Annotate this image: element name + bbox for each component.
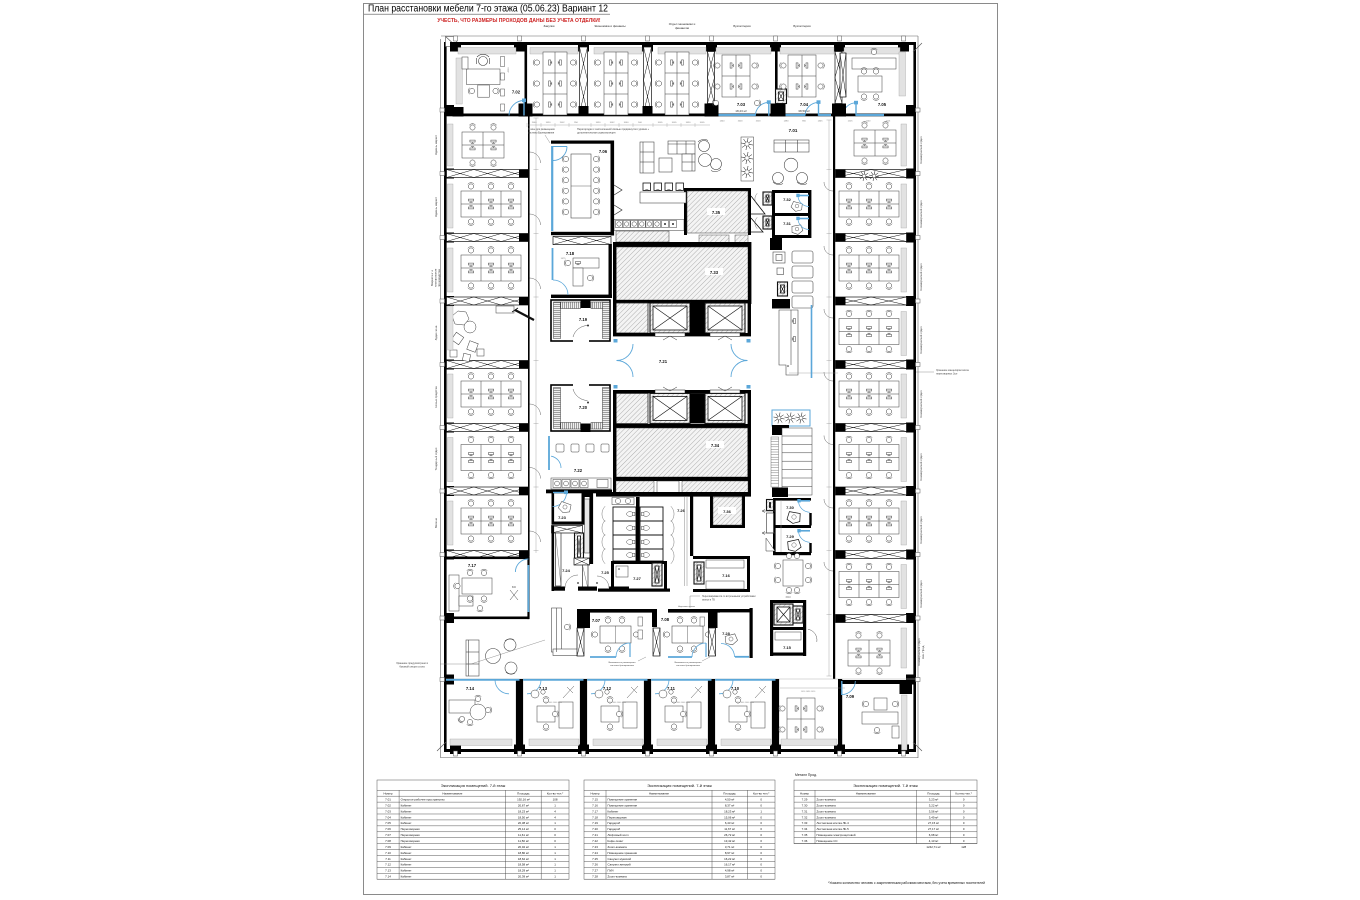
svg-text:7.03: 7.03 — [385, 809, 391, 813]
svg-text:15,06 м²: 15,06 м² — [724, 815, 735, 819]
svg-text:1200 600 1000 1100: 1200 600 1000 1100 — [736, 702, 755, 704]
svg-text:дополнительная шумоизоляция: дополнительная шумоизоляция — [577, 132, 616, 135]
svg-text:Кабинет: Кабинет — [401, 809, 413, 813]
svg-text:600: 600 — [512, 586, 517, 589]
svg-text:7.28: 7.28 — [592, 875, 598, 879]
svg-text:1010 1630 1010: 1010 1630 1010 — [801, 691, 816, 693]
svg-text:Площадь: Площадь — [517, 792, 530, 796]
svg-text:7.09: 7.09 — [846, 694, 855, 699]
svg-text:*Указано количество человек с: *Указано количество человек с закрепленн… — [828, 881, 985, 885]
svg-text:Открытое рабочее пространство: Открытое рабочее пространство — [401, 798, 445, 802]
svg-text:7.24: 7.24 — [592, 851, 598, 855]
svg-text:7.15: 7.15 — [783, 645, 792, 650]
svg-text:7.14: 7.14 — [385, 875, 391, 879]
svg-text:7.32: 7.32 — [802, 815, 808, 819]
svg-text:Кабинет: Кабинет — [401, 803, 413, 807]
svg-text:7.30: 7.30 — [802, 803, 808, 807]
svg-text:финансов: финансов — [675, 26, 689, 30]
svg-text:Гардероб: Гардероб — [608, 821, 621, 825]
svg-text:1100: 1100 — [866, 121, 871, 123]
svg-text:7.03: 7.03 — [737, 102, 746, 107]
svg-text:3,22 м²: 3,22 м² — [929, 803, 938, 807]
svg-text:8,37 м²: 8,37 м² — [725, 803, 734, 807]
svg-text:Наушники шлема: Наушники шлема — [678, 606, 696, 608]
svg-text:Тендерный отдел: Тендерный отдел — [434, 447, 438, 470]
svg-text:7.16: 7.16 — [722, 573, 731, 578]
svg-text:Экспликация помещений. 7-й эта: Экспликация помещений. 7-й этаж — [647, 783, 712, 788]
svg-text:18,29 м²: 18,29 м² — [518, 869, 529, 873]
svg-text:11,61 м²: 11,61 м² — [518, 833, 529, 837]
svg-text:1062: 1062 — [610, 122, 616, 124]
svg-text:7.31: 7.31 — [783, 221, 792, 226]
svg-text:1502: 1502 — [560, 122, 566, 124]
svg-text:128: 128 — [961, 845, 966, 849]
svg-text:Коммерческий отдел: Коммерческий отдел — [919, 263, 923, 290]
svg-text:Кабинет: Кабинет — [401, 875, 413, 879]
svg-text:38,50 м²: 38,50 м² — [798, 109, 809, 113]
svg-text:20,02 м²: 20,02 м² — [518, 845, 529, 849]
svg-text:7.04: 7.04 — [800, 102, 809, 107]
svg-text:записи и ТВ: записи и ТВ — [702, 600, 715, 602]
svg-text:7.10: 7.10 — [731, 686, 740, 691]
svg-text:Гардероб: Гардероб — [608, 827, 621, 831]
svg-text:Площадь: Площадь — [723, 792, 736, 796]
svg-text:4,98 м²: 4,98 м² — [725, 869, 734, 873]
svg-text:Помещение хранения: Помещение хранения — [608, 803, 638, 807]
svg-text:Переговорная: Переговорная — [608, 815, 627, 819]
svg-text:1600: 1600 — [738, 121, 744, 123]
svg-text:18,62 м²: 18,62 м² — [518, 857, 529, 861]
svg-text:боковой секции стола: боковой секции стола — [399, 666, 425, 669]
svg-text:Помещение СС: Помещение СС — [817, 839, 838, 843]
svg-text:Перегородки с застекленной свя: Перегородки с застекленной связью продви… — [577, 127, 650, 131]
svg-text:производства: производства — [437, 269, 441, 287]
svg-text:Номер: Номер — [384, 792, 393, 796]
svg-text:7.20: 7.20 — [579, 405, 588, 410]
svg-text:7.09: 7.09 — [385, 845, 391, 849]
svg-text:3,49 м²: 3,49 м² — [929, 815, 938, 819]
svg-text:20,39 м²: 20,39 м² — [518, 875, 529, 879]
svg-text:Переговариваются со встроенным: Переговариваются со встроенными устройст… — [702, 595, 756, 598]
svg-text:Коммерческий отдел: Коммерческий отдел — [919, 200, 923, 227]
svg-text:Коммерческий отдел: Коммерческий отдел — [919, 326, 923, 353]
svg-text:Кабинет: Кабинет — [401, 851, 413, 855]
svg-text:Коммерческий отдел: Коммерческий отдел — [919, 136, 923, 163]
svg-text:26,72 м²: 26,72 м² — [724, 833, 735, 837]
svg-text:Zoom-комната: Zoom-комната — [608, 875, 628, 879]
svg-text:7.34: 7.34 — [802, 827, 808, 831]
svg-text:Zoom-комната: Zoom-комната — [817, 815, 837, 819]
svg-text:7.24: 7.24 — [562, 568, 571, 573]
svg-text:7.15: 7.15 — [592, 798, 598, 802]
svg-text:16,22 м²: 16,22 м² — [724, 857, 735, 861]
svg-text:7.33: 7.33 — [802, 821, 808, 825]
svg-text:7.08: 7.08 — [385, 839, 391, 843]
svg-text:7.35: 7.35 — [802, 833, 808, 837]
svg-text:7.29: 7.29 — [802, 798, 808, 802]
svg-text:1242,71 м²: 1242,71 м² — [926, 845, 940, 849]
svg-text:1630: 1630 — [596, 122, 602, 124]
svg-text:20,38 м²: 20,38 м² — [518, 821, 529, 825]
svg-text:7.06: 7.06 — [599, 149, 608, 154]
svg-text:Кол-во чел.*: Кол-во чел.* — [547, 792, 564, 796]
svg-text:Наименование: Наименование — [442, 792, 462, 796]
svg-text:системы Бронирования: системы Бронирования — [528, 132, 555, 135]
svg-text:1060: 1060 — [624, 122, 630, 124]
svg-text:7.05: 7.05 — [385, 821, 391, 825]
svg-text:7.20: 7.20 — [592, 827, 598, 831]
svg-text:Площадь: Площадь — [927, 792, 940, 796]
svg-text:Наименование: Наименование — [856, 792, 876, 796]
svg-text:Кабинет: Кабинет — [401, 863, 413, 867]
svg-text:Мечени: Мечени — [434, 518, 438, 528]
svg-text:7.28: 7.28 — [722, 631, 731, 636]
svg-text:Новые средства: Новые средства — [434, 386, 438, 408]
svg-text:7.12: 7.12 — [603, 686, 612, 691]
svg-text:7.32: 7.32 — [783, 197, 792, 202]
svg-text:Коммерческий отдел: Коммерческий отдел — [919, 453, 923, 480]
svg-text:1480: 1480 — [784, 121, 790, 123]
svg-text:Переговорная: Переговорная — [401, 833, 420, 837]
svg-text:7.36: 7.36 — [723, 509, 732, 514]
svg-text:Кабинет: Кабинет — [608, 809, 620, 813]
svg-text:Бухгалтерия: Бухгалтерия — [733, 24, 751, 28]
svg-text:7.16: 7.16 — [592, 803, 598, 807]
svg-text:3,23 м²: 3,23 м² — [929, 798, 938, 802]
svg-text:7.11: 7.11 — [667, 686, 676, 691]
svg-text:1500: 1500 — [756, 121, 762, 123]
svg-text:План расстановки мебели 7-го э: План расстановки мебели 7-го этажа (05.0… — [368, 4, 608, 15]
svg-text:1115: 1115 — [886, 121, 891, 123]
svg-text:1200 600 1000 1100: 1200 600 1000 1100 — [544, 702, 563, 704]
svg-text:7.01: 7.01 — [385, 798, 391, 802]
svg-text:Возможность размещения: Возможность размещения — [609, 662, 637, 664]
svg-text:7.12: 7.12 — [385, 863, 391, 867]
svg-text:7.17: 7.17 — [592, 809, 598, 813]
svg-text:7.02: 7.02 — [385, 803, 391, 807]
svg-text:7.36: 7.36 — [802, 839, 808, 843]
svg-text:Админь маркет: Админь маркет — [434, 134, 438, 155]
svg-text:7.25: 7.25 — [601, 570, 610, 575]
svg-text:7.22: 7.22 — [574, 468, 583, 473]
svg-text:Кабинет: Кабинет — [401, 845, 413, 849]
svg-text:1005: 1005 — [700, 122, 706, 124]
svg-text:7.04: 7.04 — [385, 815, 391, 819]
svg-text:7.13: 7.13 — [539, 686, 548, 691]
svg-text:1540: 1540 — [785, 596, 791, 599]
svg-text:18,58 м²: 18,58 м² — [518, 863, 529, 867]
svg-text:Zoom-комната: Zoom-комната — [608, 845, 628, 849]
svg-text:7.31: 7.31 — [802, 809, 808, 813]
svg-text:7.23: 7.23 — [558, 515, 567, 520]
svg-text:6,68 м²: 6,68 м² — [929, 833, 938, 837]
svg-text:Кол-во чел.*: Кол-во чел.* — [955, 792, 972, 796]
svg-text:Zoom-комната: Zoom-комната — [817, 809, 837, 813]
svg-text:1630: 1630 — [546, 122, 552, 124]
svg-text:7.13: 7.13 — [385, 869, 391, 873]
svg-text:7.17: 7.17 — [468, 563, 477, 568]
svg-text:Коммерческий отдел: Коммерческий отдел — [919, 390, 923, 417]
svg-text:7.27: 7.27 — [633, 576, 642, 581]
svg-text:7.05: 7.05 — [878, 102, 887, 107]
svg-text:7.21: 7.21 — [592, 833, 598, 837]
svg-text:Номер: Номер — [591, 792, 600, 796]
svg-text:Кабинет: Кабинет — [401, 869, 413, 873]
svg-text:Кабинет: Кабинет — [401, 821, 413, 825]
svg-text:Zoom-комната: Zoom-комната — [817, 803, 837, 807]
svg-text:УЧЕСТЬ, ЧТО РАЗМЕРЫ ПРОХОДОВ Д: УЧЕСТЬ, ЧТО РАЗМЕРЫ ПРОХОДОВ ДАНЫ БЕЗ УЧ… — [437, 18, 600, 24]
svg-text:ПУИ: ПУИ — [608, 869, 614, 873]
svg-text:27,15 м²: 27,15 м² — [928, 821, 939, 825]
svg-text:Кол-во чел.*: Кол-во чел.* — [753, 792, 770, 796]
svg-text:Возможность размещения: Возможность размещения — [675, 662, 703, 664]
svg-text:Бухгалтерия: Бухгалтерия — [793, 24, 811, 28]
svg-text:7.10: 7.10 — [385, 851, 391, 855]
svg-text:Коммерческий отдел: Коммерческий отдел — [919, 516, 923, 543]
svg-text:Лестничная клетка ЛК-4: Лестничная клетка ЛК-4 — [817, 821, 850, 825]
svg-text:18,23 м²: 18,23 м² — [735, 109, 746, 113]
svg-text:192,16 м²: 192,16 м² — [517, 798, 530, 802]
svg-text:3,56 м²: 3,56 м² — [929, 809, 938, 813]
svg-text:1225: 1225 — [848, 121, 854, 123]
svg-text:Металл Прод.: Металл Прод. — [795, 773, 817, 777]
svg-text:Кабинет: Кабинет — [401, 857, 413, 861]
svg-text:Админь маркет: Админь маркет — [434, 196, 438, 217]
svg-text:7.35: 7.35 — [712, 210, 721, 215]
svg-text:7.11: 7.11 — [385, 857, 391, 861]
svg-text:18,50 м²: 18,50 м² — [518, 815, 529, 819]
svg-text:Закупки: Закупки — [544, 24, 555, 28]
svg-text:1440: 1440 — [720, 121, 726, 123]
svg-text:108: 108 — [553, 798, 558, 802]
svg-text:20,67 м²: 20,67 м² — [518, 803, 529, 807]
svg-text:системы бронирования: системы бронирования — [676, 665, 701, 667]
svg-text:7.02: 7.02 — [512, 90, 521, 95]
svg-text:Кофе-поинт: Кофе-поинт — [608, 839, 625, 843]
svg-text:27,17 м²: 27,17 м² — [928, 827, 939, 831]
svg-text:11,50 м²: 11,50 м² — [518, 839, 529, 843]
svg-text:1540: 1540 — [532, 122, 538, 124]
svg-text:Помещение хранения: Помещение хранения — [608, 851, 638, 855]
svg-text:4,13 м²: 4,13 м² — [929, 839, 938, 843]
svg-text:Экономика и финансы: Экономика и финансы — [594, 24, 625, 28]
svg-text:13,42 м²: 13,42 м² — [724, 839, 735, 843]
svg-text:Помещение хранения: Помещение хранения — [608, 798, 638, 802]
svg-text:7.34: 7.34 — [711, 443, 720, 448]
svg-text:7.27: 7.27 — [592, 869, 598, 873]
svg-text:7.21: 7.21 — [659, 359, 668, 364]
svg-text:Наименование: Наименование — [649, 792, 669, 796]
svg-text:1630: 1630 — [686, 122, 692, 124]
svg-text:7.18: 7.18 — [592, 815, 598, 819]
svg-text:25,14 м²: 25,14 м² — [518, 827, 529, 831]
svg-text:системы бронирования: системы бронирования — [610, 665, 635, 667]
svg-text:7.08: 7.08 — [661, 617, 670, 622]
svg-text:11,67 м²: 11,67 м² — [724, 827, 735, 831]
svg-text:7.25: 7.25 — [592, 857, 598, 861]
svg-text:7.22: 7.22 — [592, 839, 598, 843]
svg-text:7.29: 7.29 — [786, 534, 795, 539]
svg-text:7.14: 7.14 — [466, 686, 475, 691]
svg-text:1445: 1445 — [818, 121, 824, 123]
svg-text:1200 600 1000 1100: 1200 600 1000 1100 — [608, 702, 627, 704]
svg-text:Лестничная клетка ЛК-5: Лестничная клетка ЛК-5 — [817, 827, 850, 831]
svg-text:6,43 м²: 6,43 м² — [725, 821, 734, 825]
svg-text:7.18: 7.18 — [566, 251, 575, 256]
svg-text:3,87 м²: 3,87 м² — [725, 875, 734, 879]
svg-text:8,97 м²: 8,97 м² — [725, 851, 734, 855]
svg-text:Аудио зона: Аудио зона — [434, 325, 438, 340]
svg-text:1005: 1005 — [658, 122, 664, 124]
svg-text:Лифтовый холл: Лифтовый холл — [608, 833, 629, 837]
svg-text:Zoom-комната: Zoom-комната — [817, 798, 837, 802]
svg-text:1200 600 1000 1100: 1200 600 1000 1100 — [672, 702, 691, 704]
svg-text:7.06: 7.06 — [385, 827, 391, 831]
svg-text:переговорных 3шт: переговорных 3шт — [936, 373, 958, 376]
svg-text:4,50 м²: 4,50 м² — [725, 798, 734, 802]
svg-text:Номер: Номер — [800, 792, 809, 796]
svg-text:Экспликация помещений. 7-й эта: Экспликация помещений. 7-й этаж — [441, 783, 506, 788]
svg-text:Санузел мужской: Санузел мужской — [608, 857, 632, 861]
svg-text:Переговорная: Переговорная — [401, 839, 420, 843]
svg-text:16,17 м²: 16,17 м² — [724, 863, 735, 867]
svg-text:Кабинет: Кабинет — [401, 815, 413, 819]
svg-text:7.33: 7.33 — [710, 270, 719, 275]
svg-text:Нач. Прод.: Нач. Прод. — [921, 645, 925, 659]
svg-text:Экспликация помещений. 7-й эта: Экспликация помещений. 7-й этаж — [853, 783, 918, 788]
svg-text:Коммерческий отдел: Коммерческий отдел — [919, 580, 923, 607]
svg-text:7.01: 7.01 — [789, 128, 798, 133]
svg-text:7.19: 7.19 — [579, 317, 588, 322]
svg-text:7.07: 7.07 — [385, 833, 391, 837]
svg-text:3,71 м²: 3,71 м² — [725, 845, 734, 849]
svg-text:7.26: 7.26 — [592, 863, 598, 867]
svg-text:1475: 1475 — [561, 258, 567, 260]
svg-text:18,23 м²: 18,23 м² — [518, 809, 529, 813]
svg-text:7.23: 7.23 — [592, 845, 598, 849]
svg-text:Помещение электрощитовой: Помещение электрощитовой — [817, 833, 856, 837]
svg-text:Санузел женский: Санузел женский — [608, 863, 632, 867]
svg-text:7.30: 7.30 — [786, 505, 795, 510]
svg-text:18,80 м²: 18,80 м² — [518, 851, 529, 855]
svg-text:4200: 4200 — [508, 67, 510, 73]
svg-text:Переговорная: Переговорная — [401, 827, 420, 831]
svg-text:1005: 1005 — [672, 122, 678, 124]
svg-text:7.19: 7.19 — [592, 821, 598, 825]
svg-text:18,23 м²: 18,23 м² — [724, 809, 735, 813]
svg-text:7.07: 7.07 — [592, 618, 601, 623]
